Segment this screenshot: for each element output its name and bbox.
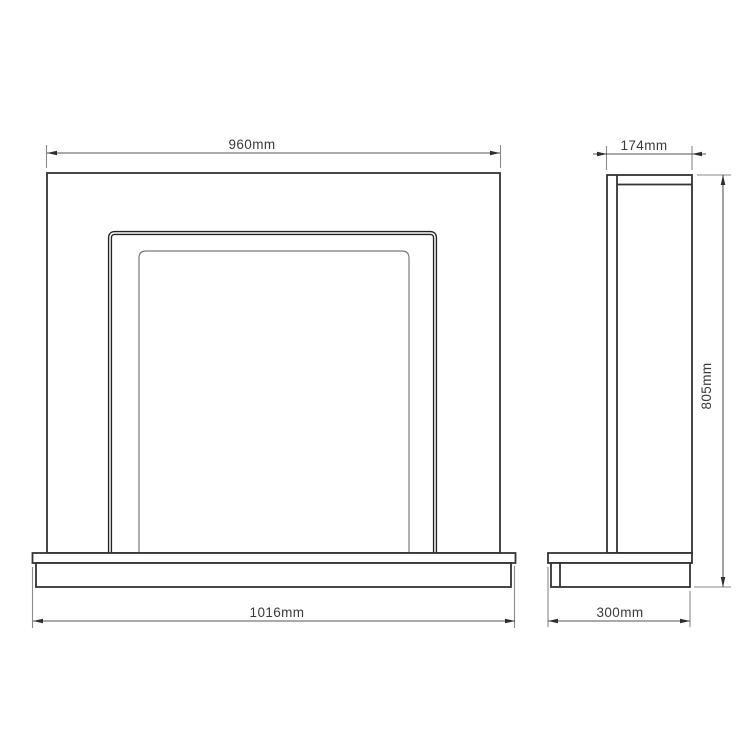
dim-label-side-top-depth: 174mm (620, 138, 667, 153)
arrow-left (33, 619, 43, 624)
fireplace-technical-drawing: 960mm 1016mm 174mm (0, 0, 750, 750)
dim-label-front-top-width: 960mm (228, 137, 275, 152)
arrow-bottom (721, 577, 726, 587)
drawing-page: 960mm 1016mm 174mm (0, 0, 750, 750)
dimension-side-height: 805mm (694, 175, 731, 587)
arrow-left (548, 619, 558, 624)
dim-label-side-base-depth: 300mm (596, 605, 643, 620)
arrow-left (597, 152, 607, 157)
front-view (33, 173, 516, 587)
dimension-front-top-width: 960mm (47, 137, 501, 168)
front-surround-outline (47, 173, 500, 553)
dimension-side-top-depth: 174mm (593, 138, 706, 170)
arrow-right (505, 619, 515, 624)
arrow-top (721, 175, 726, 185)
arrow-left (47, 151, 57, 156)
front-hearth-base (36, 563, 511, 587)
arrow-right (680, 619, 690, 624)
side-hearth-base (551, 563, 690, 587)
arrow-right (692, 152, 702, 157)
side-hearth-top (548, 553, 692, 563)
side-panel-outline (607, 175, 692, 553)
side-view (548, 175, 692, 587)
front-hearth-top (33, 553, 516, 563)
arrow-right (490, 151, 500, 156)
dim-label-side-height: 805mm (699, 362, 714, 409)
dim-label-front-base-width: 1016mm (250, 605, 305, 620)
